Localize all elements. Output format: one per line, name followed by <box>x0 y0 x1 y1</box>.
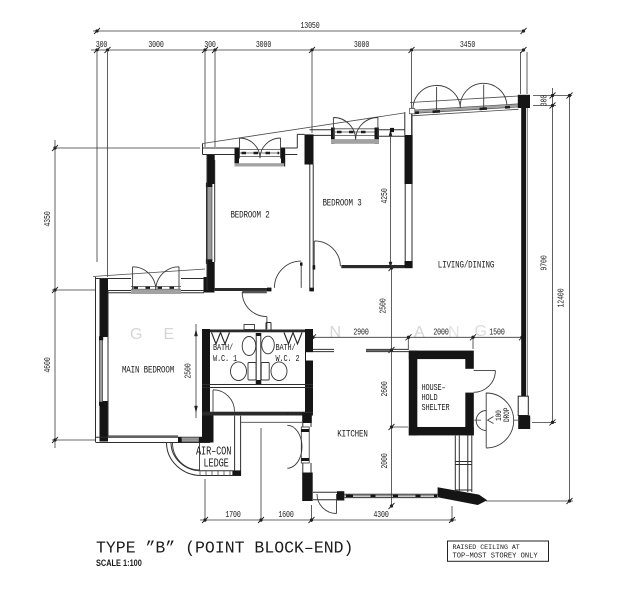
svg-text:300: 300 <box>540 94 550 106</box>
svg-text:BATH/: BATH/ <box>276 342 296 353</box>
svg-text:A: A <box>414 324 425 341</box>
svg-text:G: G <box>130 326 142 343</box>
svg-text:4350: 4350 <box>43 211 53 227</box>
svg-text:BATH/: BATH/ <box>213 342 233 353</box>
svg-text:1500: 1500 <box>489 327 505 337</box>
svg-text:BEDROOM 3: BEDROOM 3 <box>322 196 361 209</box>
svg-text:SCALE 1:100: SCALE 1:100 <box>96 558 142 568</box>
svg-text:TOP–MOST STOREY ONLY: TOP–MOST STOREY ONLY <box>453 552 539 560</box>
svg-text:MAIN BEDROOM: MAIN BEDROOM <box>122 363 174 376</box>
svg-text:3000: 3000 <box>354 40 370 50</box>
svg-text:1700: 1700 <box>225 510 241 520</box>
svg-text:2000: 2000 <box>433 327 449 337</box>
svg-text:1600: 1600 <box>278 510 294 520</box>
svg-text:N: N <box>330 324 342 341</box>
svg-text:3450: 3450 <box>460 40 476 50</box>
svg-text:W.C. 1: W.C. 1 <box>213 353 237 364</box>
svg-text:2900: 2900 <box>353 327 369 337</box>
svg-text:4250: 4250 <box>380 188 390 204</box>
svg-text:12400: 12400 <box>557 288 567 307</box>
svg-text:3000: 3000 <box>148 40 164 50</box>
svg-text:9700: 9700 <box>540 255 550 271</box>
svg-text:2500: 2500 <box>379 298 389 314</box>
svg-text:2500: 2500 <box>184 363 194 379</box>
svg-text:2600: 2600 <box>380 381 390 397</box>
svg-text:13050: 13050 <box>300 21 319 31</box>
svg-text:W.C. 2: W.C. 2 <box>276 353 300 364</box>
svg-text:4600: 4600 <box>43 357 53 373</box>
svg-text:KITCHEN: KITCHEN <box>337 427 367 440</box>
svg-text:TYPE ”B” (POINT BLOCK–END): TYPE ”B” (POINT BLOCK–END) <box>96 539 353 558</box>
svg-text:2000: 2000 <box>380 453 390 469</box>
svg-text:SHELTER: SHELTER <box>422 402 450 413</box>
svg-text:E: E <box>164 326 175 343</box>
svg-text:4300: 4300 <box>373 510 389 520</box>
svg-text:LIVING/DINING: LIVING/DINING <box>438 258 494 271</box>
svg-text:DROP: DROP <box>503 407 512 422</box>
svg-text:3000: 3000 <box>256 40 272 50</box>
svg-text:BEDROOM 2: BEDROOM 2 <box>230 208 269 221</box>
svg-text:LEDGE: LEDGE <box>204 457 229 471</box>
svg-text:N: N <box>448 324 460 341</box>
svg-text:RAISED CEILING AT: RAISED CEILING AT <box>453 544 520 551</box>
